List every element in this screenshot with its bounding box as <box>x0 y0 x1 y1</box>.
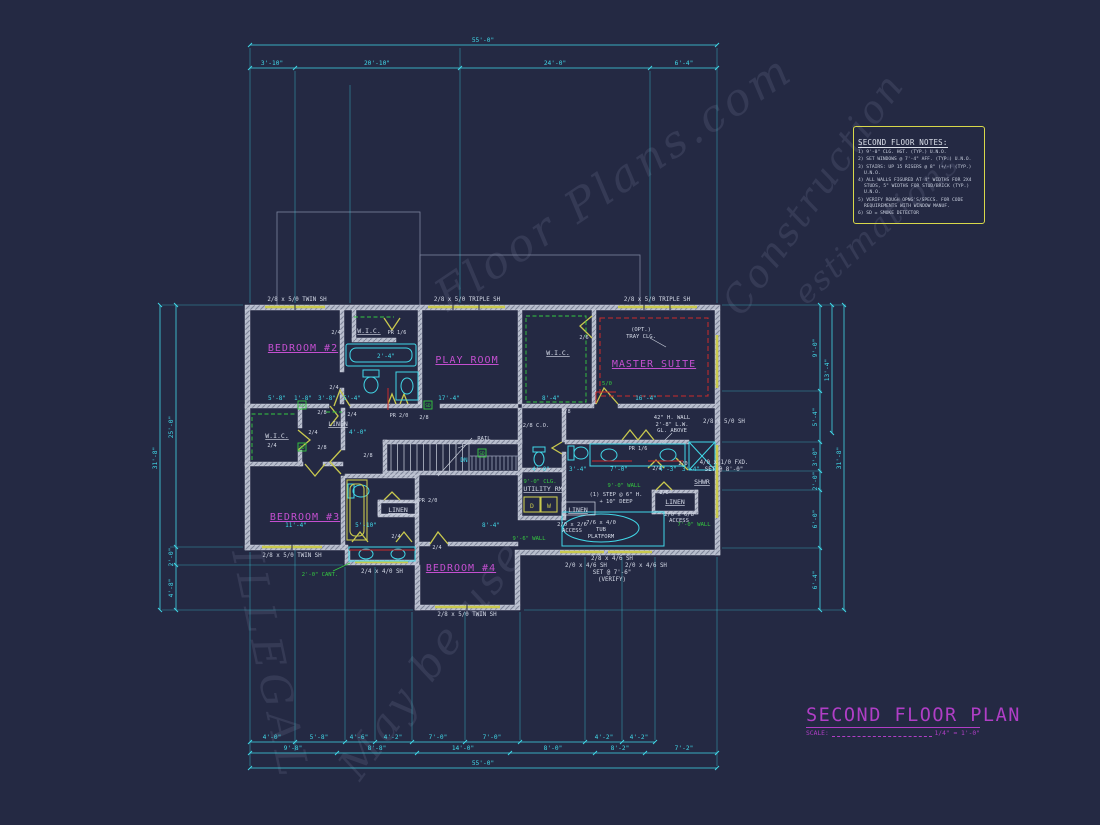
window-label: 2/8 x 5/0 TRIPLE SH <box>434 297 501 303</box>
room-label-wic: W.I.C. <box>357 327 380 335</box>
dim-label: 8'-8" <box>368 745 387 752</box>
sd-marker: SD <box>299 445 305 451</box>
door-size-label: PR 2/0 <box>390 413 409 419</box>
ceiling-height-note: 9'-0" CLG. <box>523 479 556 485</box>
half-wall-note: GL. ABOVE <box>657 428 687 434</box>
dim-label: 14'-0" <box>452 745 474 752</box>
dim-label: 11'-4" <box>285 522 307 529</box>
room-label-bedroom3: BEDROOM #3 <box>270 512 340 523</box>
window-label: 2/8 x 5/0 TRIPLE SH <box>624 297 691 303</box>
dim-label: 3'-4" <box>682 466 700 473</box>
watermark-text: ILLEGAL <box>222 543 319 786</box>
door-swing <box>656 482 672 490</box>
toilet-tank <box>568 446 574 460</box>
dim-label: 4'-0" <box>263 734 282 741</box>
tray-ceiling-note: (OPT.) <box>631 327 651 333</box>
washer-label: W <box>547 502 551 510</box>
dim-label: 8'-2" <box>611 745 630 752</box>
door-size-label: 2/4 <box>267 443 276 449</box>
window-label: 2/8 x 5/0 SH <box>703 419 745 425</box>
room-label-utility: UTILITY RM <box>523 485 562 493</box>
dim-label: 6'-4" <box>812 571 819 590</box>
door-size-label: 2/8 <box>561 409 570 415</box>
dim-label: 3'-10" <box>261 60 283 67</box>
door-size-label: 2/8 <box>317 445 326 451</box>
tub-platform-label: 7/6 x 4/0 <box>586 520 616 526</box>
cantilever-note: 2'-0" CANT. <box>302 572 338 578</box>
dim-label: 5'-4" <box>812 408 819 427</box>
dim-label: 4'-0" <box>349 429 367 436</box>
door-size-label: 2/8 <box>317 410 326 416</box>
dim-label: 7'-0" <box>483 734 502 741</box>
dim-label: 25'-0" <box>168 416 175 438</box>
note-item: 2) SET WINDOWS @ 7'-4" AFF. (TYP.) U.N.O… <box>858 157 980 163</box>
dim-label: 2'-0" <box>812 472 819 491</box>
dim-label: 17'-4" <box>438 395 460 402</box>
dim-label: 4'-6" <box>350 734 369 741</box>
door-swing <box>552 442 562 454</box>
stair-rail <box>470 456 520 470</box>
door-size-label: PR 2/0 <box>419 498 438 504</box>
door-size-label: 2/4 <box>432 545 441 551</box>
wall-height-note: 7'-0" WALL <box>677 522 711 528</box>
dim-label: 20'-10" <box>364 60 390 67</box>
stair-treads <box>391 444 469 471</box>
window-label: 2/4 x 4/0 SH <box>361 569 403 575</box>
dim-label: 8'-4" <box>542 395 560 402</box>
door-pair-swing <box>384 318 400 330</box>
notes-title: SECOND FLOOR NOTES: <box>858 138 948 148</box>
room-label-linen: LINEN <box>388 506 408 514</box>
dim-label: 24'-0" <box>544 60 566 67</box>
room-label-linen: LINEN <box>665 498 685 506</box>
dim-label: 6'-0" <box>812 510 819 529</box>
window-label: 2/8 x 5/0 TWIN SH <box>437 612 497 618</box>
cased-opening-label: 2/8 C.O. <box>523 423 550 429</box>
note-item: 1) 9'-0" CLG. HGT. (TYP.) U.N.O. <box>858 150 980 156</box>
door-size-label: 5/0 <box>602 381 612 387</box>
door-size-label: 2/8 <box>419 415 428 421</box>
dim-label: 2'-0" <box>168 548 175 567</box>
dim-label: 3'-8" <box>318 395 336 402</box>
half-wall-note: 42" H. WALL <box>654 415 691 421</box>
door-size-label: 2/4 <box>329 385 338 391</box>
step-note: + 10" DEEP <box>599 499 633 505</box>
notes-box: SECOND FLOOR NOTES: 1) 9'-0" CLG. HGT. (… <box>853 126 985 224</box>
room-label-shower: SHWR <box>694 478 710 486</box>
sd-marker: SD <box>299 403 305 409</box>
dryer-label: D <box>530 502 534 510</box>
door-swing <box>596 388 618 404</box>
door-size-label: 2/6 <box>579 335 588 341</box>
window-label: 2/0 x 4/6 SH <box>565 563 607 569</box>
dim-label: 6'-4" <box>675 60 694 67</box>
scale-dashes <box>832 732 932 737</box>
dim-label: 7'-0" <box>429 734 448 741</box>
step-note: (1) STEP @ 6" H. <box>590 492 643 498</box>
note-item: 5) VERIFY ROUGH OPNG'S/SPECS. FOR CODE R… <box>858 198 980 210</box>
vanity <box>396 372 418 400</box>
door-swing <box>384 492 400 500</box>
dim-label: 2'-4" <box>377 353 395 360</box>
door-pair-swing <box>388 394 408 404</box>
dim-label: 55'-0" <box>472 37 494 44</box>
access-label: ACCESS <box>562 528 582 534</box>
room-label-playroom: PLAY ROOM <box>435 355 498 366</box>
fixtures <box>346 344 715 561</box>
toilet-tank <box>363 370 379 377</box>
toilet-tank <box>533 447 545 452</box>
door-size-label: 2/4 <box>652 466 661 472</box>
dim-label: 9'-0" <box>812 339 819 358</box>
door-pair-swing <box>622 430 654 440</box>
sink <box>601 449 617 461</box>
door-swing <box>430 532 448 544</box>
window-label: SET @ 7'-6" <box>593 570 631 576</box>
dim-label: 4'-0" <box>532 466 550 473</box>
dim-label: 3'-0" <box>812 448 819 467</box>
dim-label: 16'-4" <box>635 395 657 402</box>
dim-label: 5'-8" <box>268 395 286 402</box>
tray-ceiling-note: TRAY CLG. <box>626 334 656 340</box>
room-label-bedroom4: BEDROOM #4 <box>426 563 496 574</box>
dim-label: 31'-8" <box>152 447 159 469</box>
door-size-label: 2/8 <box>363 453 372 459</box>
window-label: 2/8 x 4/6 SH <box>591 556 633 562</box>
sd-marker: SD <box>479 451 485 457</box>
dim-label: 4'-2" <box>630 734 649 741</box>
room-label-wic: W.I.C. <box>546 349 569 357</box>
wall-height-note: 9'-0" WALL <box>607 483 641 489</box>
window-label: 2/0 x 4/6 SH <box>625 563 667 569</box>
door-size-label: 2/4 <box>331 330 340 336</box>
dim-label: 4'-2" <box>384 734 403 741</box>
door-swing <box>305 464 325 476</box>
tub-platform-label: TUB <box>596 527 607 533</box>
dim-label: 5'-10" <box>355 522 377 529</box>
dim-label: 4'-2" <box>595 734 614 741</box>
dim-label: 5'-4" <box>343 395 361 402</box>
sink <box>660 449 676 461</box>
cant-leader <box>333 563 350 571</box>
roof-outline <box>277 212 420 306</box>
scale-value: 1/4" = 1'-0" <box>935 730 981 737</box>
window-label: (VERIFY) <box>598 577 626 583</box>
dim-label: 55'-0" <box>472 760 494 767</box>
dim-label: 7'-0" <box>610 466 628 473</box>
wall-height-note: 9'-6" WALL <box>512 536 546 542</box>
window-label: 4/0 x 1/0 FXD. <box>700 460 749 466</box>
note-item: 4) ALL WALLS FIGURED AT 4" WIDTHS FOR 2X… <box>858 178 980 196</box>
rail-note: RAIL <box>477 436 491 442</box>
room-label-linen: LINEN <box>568 506 588 514</box>
toilet-bowl <box>534 452 544 466</box>
window-label: 2/8 x 5/0 TWIN SH <box>267 297 327 303</box>
dim-label: 31'-8" <box>836 447 843 469</box>
door-size-label: 2/4 <box>308 430 317 436</box>
door-size-label: 2/6 <box>659 490 668 496</box>
door-size-label: 2/4 <box>347 412 356 418</box>
dim-label: 9'-8" <box>284 745 303 752</box>
window-label: 2/8 x 5/0 TWIN SH <box>262 553 322 559</box>
stairs-down-label: DN <box>460 457 468 464</box>
scale-label: SCALE: <box>806 730 829 737</box>
room-label-linen: LINEN <box>328 420 348 428</box>
door-size-label: PR 1/6 <box>388 330 407 336</box>
dim-label: 4'-8" <box>168 579 175 598</box>
window-label: SET @ 8'-0" <box>705 467 743 473</box>
room-label-wic: W.I.C. <box>265 432 288 440</box>
plan-title: SECOND FLOOR PLAN <box>806 705 980 728</box>
sd-marker: SD <box>425 403 431 409</box>
dim-label: 13'-4" <box>824 359 831 381</box>
room-label-master-suite: MASTER SUITE <box>612 359 696 370</box>
toilet-bowl <box>364 377 378 393</box>
door-size-label: PR 1/6 <box>629 446 648 452</box>
drawing-sheet: Floor Plans.com Construction estimations… <box>0 0 1100 825</box>
dim-label: 7'-2" <box>675 745 694 752</box>
dim-label: 8'-0" <box>544 745 563 752</box>
tub-platform-label: PLATFORM <box>588 534 615 540</box>
dim-label: 5'-8" <box>310 734 329 741</box>
note-item: 3) STAIRS: UP 15 RISERS @ 8" (+/-) (TYP.… <box>858 165 980 177</box>
dim-label: 3'-4" <box>569 466 587 473</box>
room-label-bedroom2: BEDROOM #2 <box>268 343 338 354</box>
sink <box>401 378 413 394</box>
title-block: SECOND FLOOR PLAN SCALE: 1/4" = 1'-0" <box>806 705 980 737</box>
door-size-label: 2/4 <box>391 534 400 540</box>
note-item: 6) SD = SMOKE DETECTOR <box>858 211 980 217</box>
scale-row: SCALE: 1/4" = 1'-0" <box>806 730 980 737</box>
door-size-label: 2/0 <box>678 461 687 467</box>
dim-label: 1'-8" <box>294 395 312 402</box>
dim-label: 8'-4" <box>482 522 500 529</box>
tray-ceiling-outline <box>600 318 708 396</box>
toilet-bowl <box>574 447 588 459</box>
floorplan-canvas: Floor Plans.com Construction estimations… <box>0 0 1100 825</box>
